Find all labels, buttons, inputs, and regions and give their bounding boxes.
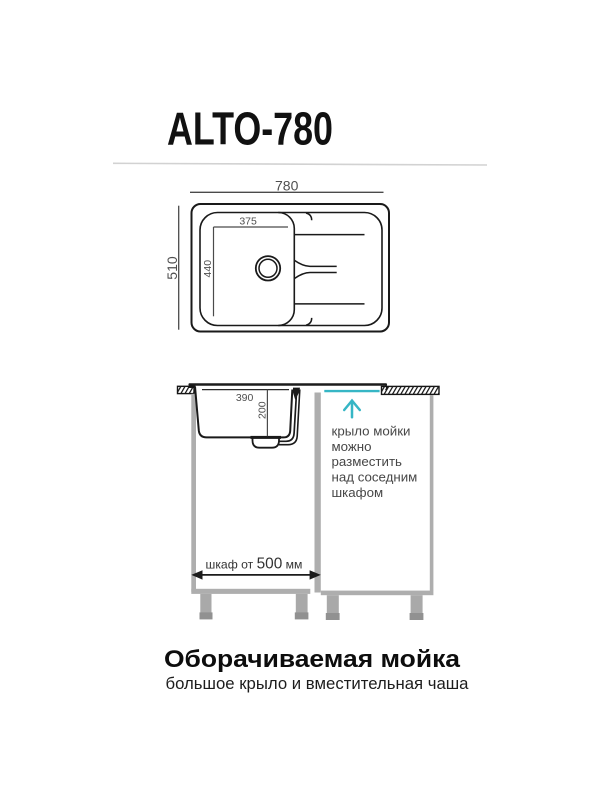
svg-text:Оборачиваемая мойка: Оборачиваемая мойка <box>164 646 461 673</box>
svg-text:440: 440 <box>202 260 214 278</box>
svg-text:ALTO-780: ALTO-780 <box>167 103 333 155</box>
svg-text:разместить: разместить <box>332 454 403 469</box>
svg-text:390: 390 <box>236 392 254 404</box>
svg-text:крыло мойки: крыло мойки <box>332 423 411 438</box>
svg-text:510: 510 <box>164 256 180 280</box>
svg-text:шкаф от 500 мм: шкаф от 500 мм <box>206 556 303 573</box>
svg-text:200: 200 <box>256 401 268 419</box>
svg-text:375: 375 <box>239 215 257 227</box>
svg-text:можно: можно <box>332 439 372 454</box>
svg-text:большое крыло и вместительная: большое крыло и вместительная чаша <box>166 675 470 693</box>
svg-text:780: 780 <box>275 178 299 194</box>
svg-text:над соседним: над соседним <box>332 470 418 485</box>
svg-text:шкафом: шкафом <box>332 485 384 500</box>
